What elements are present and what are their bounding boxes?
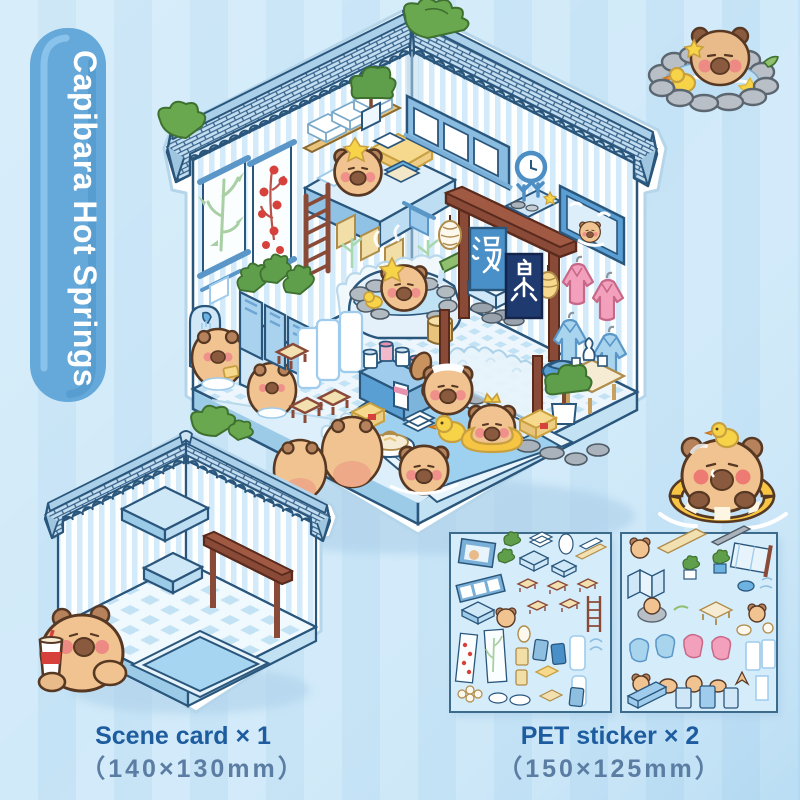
svg-text:PET sticker × 2: PET sticker × 2 [521,722,700,750]
svg-text:（140×130mm）: （140×130mm） [80,754,305,783]
svg-text:Capibara Hot Springs: Capibara Hot Springs [67,50,103,387]
svg-text:（150×125mm）: （150×125mm） [497,754,722,783]
svg-text:Scene card × 1: Scene card × 1 [95,722,271,750]
